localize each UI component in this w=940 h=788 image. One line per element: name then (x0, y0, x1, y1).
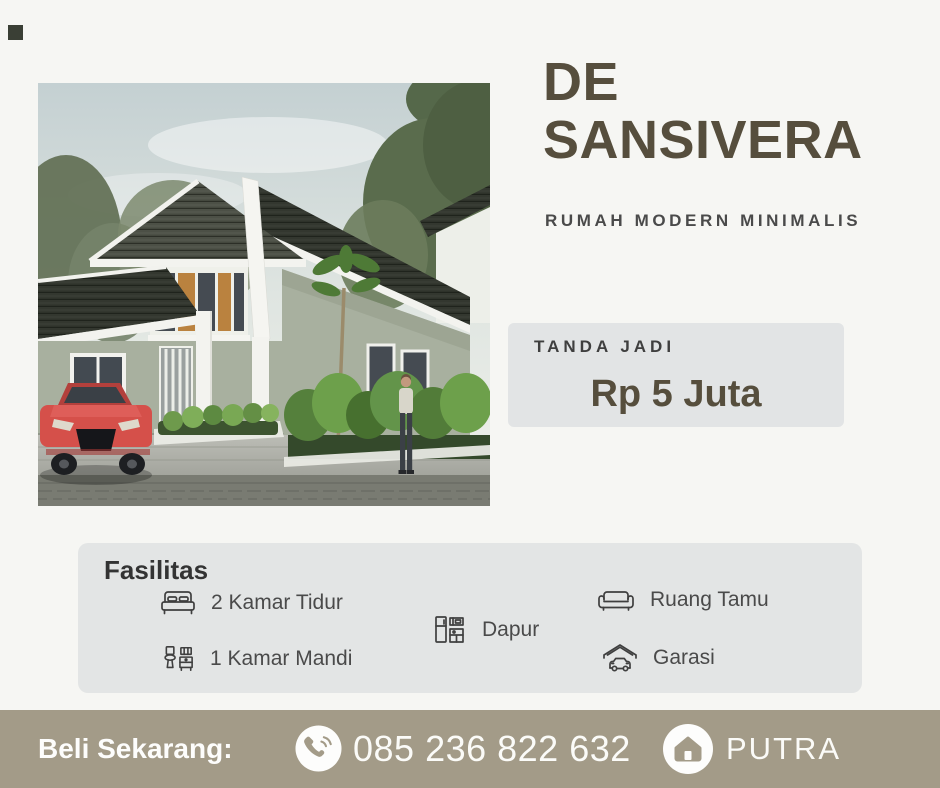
cta-label: Beli Sekarang: (38, 733, 233, 765)
booking-label: TANDA JADI (534, 337, 675, 357)
bed-icon (160, 589, 196, 616)
brand-mark (8, 25, 23, 40)
kitchen-icon (433, 614, 467, 646)
facility-label: Dapur (482, 618, 539, 642)
bathroom-icon (163, 644, 195, 674)
facility-item-bedrooms: 2 Kamar Tidur (160, 589, 343, 616)
booking-price: Rp 5 Juta (508, 373, 844, 416)
garage-icon (602, 642, 638, 673)
poster: DE SANSIVERA RUMAH MODERN MINIMALIS TAND… (0, 0, 940, 788)
page-subtitle: RUMAH MODERN MINIMALIS (545, 211, 861, 231)
facility-label: Ruang Tamu (650, 588, 769, 612)
home-icon (662, 723, 714, 775)
footer-brand-name: PUTRA (726, 731, 841, 767)
facilities-panel: Fasilitas 2 Kamar Tidur (78, 543, 862, 693)
facility-label: Garasi (653, 646, 715, 670)
facility-item-bathroom: 1 Kamar Mandi (163, 644, 352, 674)
booking-panel: TANDA JADI Rp 5 Juta (508, 323, 844, 427)
facility-label: 2 Kamar Tidur (211, 591, 343, 615)
facility-label: 1 Kamar Mandi (210, 647, 352, 671)
facility-item-garage: Garasi (602, 642, 715, 673)
phone-number: 085 236 822 632 (353, 728, 631, 770)
facility-item-living-room: Ruang Tamu (597, 587, 769, 612)
sofa-icon (597, 587, 635, 612)
footer-bar: Beli Sekarang: 085 236 822 632 PUTRA (0, 710, 940, 788)
house-photo (38, 83, 490, 506)
page-title: DE SANSIVERA (543, 54, 903, 170)
facility-item-kitchen: Dapur (433, 614, 539, 646)
phone-icon (295, 725, 342, 772)
facilities-heading: Fasilitas (104, 555, 208, 586)
house-photo-illustration (38, 83, 490, 506)
